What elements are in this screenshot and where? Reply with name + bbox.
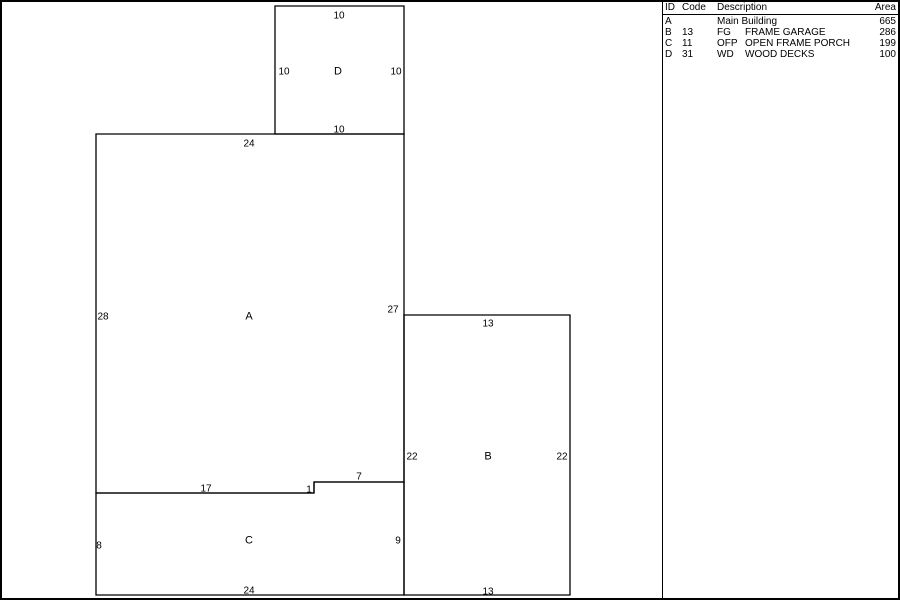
legend-cell-abbrev: FG — [717, 27, 745, 38]
legend-header-code: Code — [682, 2, 706, 14]
dimension-label: 10 — [333, 125, 345, 136]
legend-header-description: Description — [717, 2, 767, 14]
legend-cell-id: A — [665, 16, 672, 27]
area-label-A: A — [245, 311, 253, 323]
legend-cell-area: 100 — [879, 49, 896, 60]
dimension-label: 10 — [278, 67, 290, 78]
dimension-label: 22 — [556, 452, 568, 463]
area-label-C: C — [245, 535, 253, 547]
area-label-D: D — [334, 66, 342, 78]
legend-row-b: B 13 FGFRAME GARAGE 286 — [663, 27, 899, 38]
dimension-label: 17 — [200, 484, 212, 495]
legend-cell-area: 286 — [879, 27, 896, 38]
legend-cell-id: C — [665, 38, 672, 49]
dimension-label: 27 — [387, 305, 399, 316]
dimension-label: 10 — [333, 11, 345, 22]
legend-cell-description: FGFRAME GARAGE — [717, 27, 826, 38]
area-label-B: B — [484, 451, 491, 463]
dimension-label: 13 — [482, 587, 494, 598]
legend-cell-name: Main Building — [717, 16, 777, 27]
legend-cell-id: D — [665, 49, 672, 60]
legend-cell-abbrev: OFP — [717, 38, 745, 49]
legend-cell-code: 11 — [682, 38, 692, 49]
dimension-label: 24 — [243, 586, 255, 597]
legend-cell-area: 665 — [879, 16, 896, 27]
dimension-label: 24 — [243, 139, 255, 150]
legend-cell-name: OPEN FRAME PORCH — [745, 38, 850, 49]
dimension-label: 9 — [395, 536, 401, 547]
legend-row-c: C 11 OFPOPEN FRAME PORCH 199 — [663, 38, 899, 49]
legend-cell-description: Main Building — [717, 16, 777, 27]
legend-cell-name: WOOD DECKS — [745, 49, 814, 60]
legend-cell-code: 31 — [682, 49, 693, 60]
dimension-label: 28 — [97, 312, 109, 323]
dimension-label: 22 — [406, 452, 418, 463]
dimension-label: 13 — [482, 319, 494, 330]
dimension-label: 7 — [356, 472, 362, 483]
legend-row-d: D 31 WDWOOD DECKS 100 — [663, 49, 899, 60]
dimension-label: 8 — [96, 541, 102, 552]
property-sketch-viewer: 1010D10102428A271322B2271718C92413 ID Co… — [0, 0, 900, 600]
legend-header-area: Area — [875, 2, 896, 14]
dimension-label: 1 — [306, 485, 312, 496]
legend-row-a: A Main Building 665 — [663, 16, 899, 27]
dimension-label: 10 — [390, 67, 402, 78]
legend-cell-name: FRAME GARAGE — [745, 27, 826, 38]
legend-cell-abbrev: WD — [717, 49, 745, 60]
legend-cell-area: 199 — [879, 38, 896, 49]
legend-cell-description: OFPOPEN FRAME PORCH — [717, 38, 850, 49]
legend-panel: ID Code Description Area A Main Building… — [662, 2, 899, 598]
legend-header-id: ID — [665, 2, 675, 14]
legend-cell-code: 13 — [682, 27, 693, 38]
legend-header-row: ID Code Description Area — [663, 2, 899, 15]
legend-cell-description: WDWOOD DECKS — [717, 49, 814, 60]
legend-cell-id: B — [665, 27, 672, 38]
